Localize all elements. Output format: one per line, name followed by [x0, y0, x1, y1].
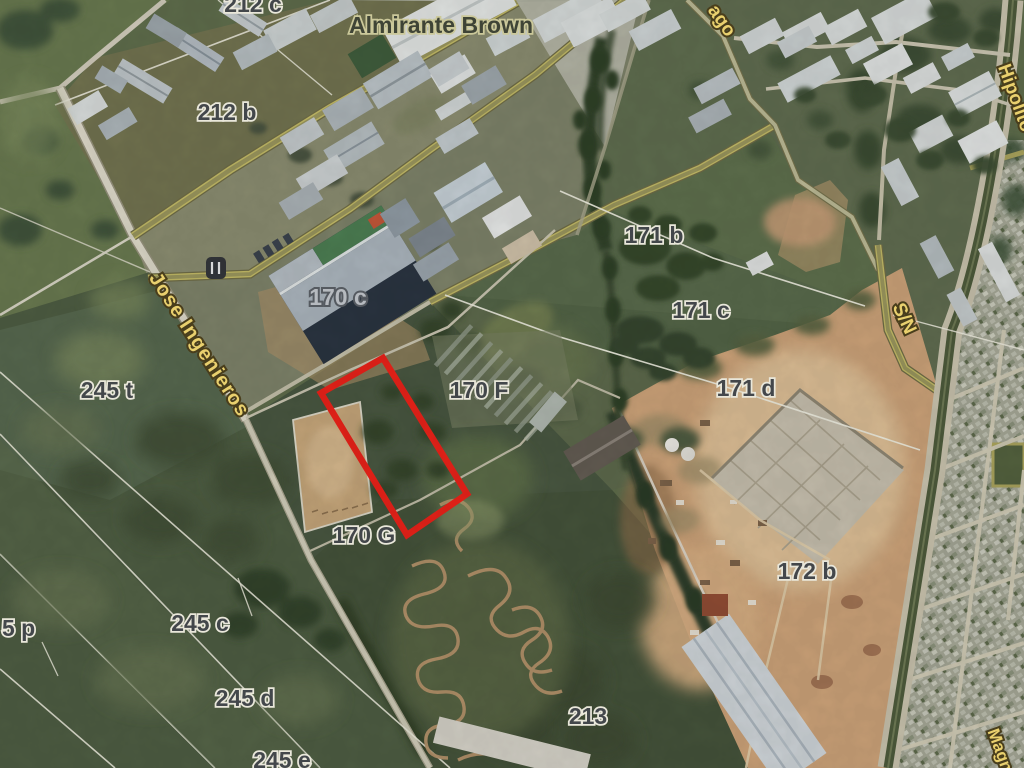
- svg-text:170 G: 170 G: [333, 522, 396, 548]
- svg-text:212 b: 212 b: [198, 99, 257, 125]
- svg-text:245 c: 245 c: [171, 610, 229, 636]
- svg-text:245 d: 245 d: [216, 685, 275, 711]
- svg-text:5 p: 5 p: [2, 615, 35, 641]
- svg-text:245 e: 245 e: [253, 747, 311, 768]
- svg-text:171 c: 171 c: [672, 297, 730, 323]
- svg-text:170 F: 170 F: [450, 377, 509, 403]
- svg-text:213: 213: [569, 703, 607, 729]
- svg-text:172 b: 172 b: [778, 558, 837, 584]
- svg-text:212 c: 212 c: [224, 0, 282, 17]
- svg-text:171 b: 171 b: [625, 222, 684, 248]
- svg-text:Almirante Brown: Almirante Brown: [349, 12, 533, 38]
- svg-text:245 t: 245 t: [81, 377, 134, 403]
- svg-text:171 d: 171 d: [717, 375, 776, 401]
- svg-text:170 c: 170 c: [309, 284, 367, 310]
